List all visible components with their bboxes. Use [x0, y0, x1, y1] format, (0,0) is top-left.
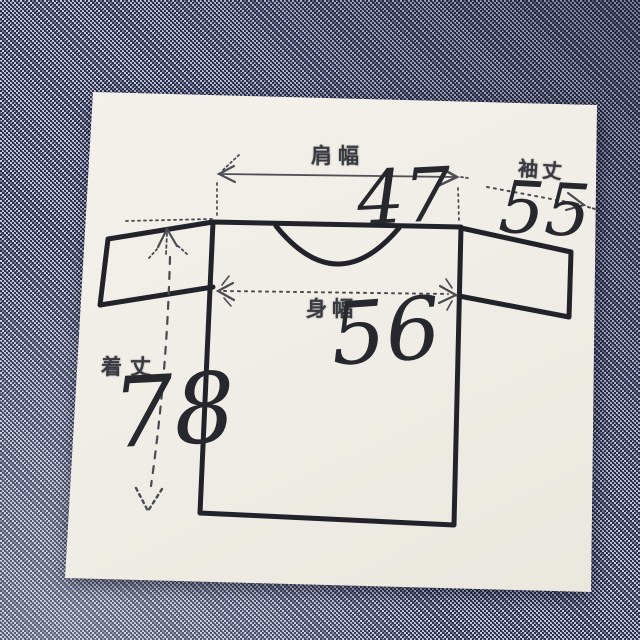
body-width-value: 56 — [328, 285, 443, 378]
card-shadow: 肩幅 袖丈 身幅 着丈 47 55 56 78 — [0, 0, 640, 640]
measurement-card: 肩幅 袖丈 身幅 着丈 47 55 56 78 — [0, 0, 640, 640]
photo-scene: 肩幅 袖丈 身幅 着丈 47 55 56 78 — [0, 0, 640, 640]
sleeve-length-value: 55 — [497, 171, 592, 248]
left-sleeve — [100, 222, 213, 305]
shoulder-width-value: 47 — [355, 158, 453, 237]
garment-length-value: 78 — [110, 359, 238, 462]
